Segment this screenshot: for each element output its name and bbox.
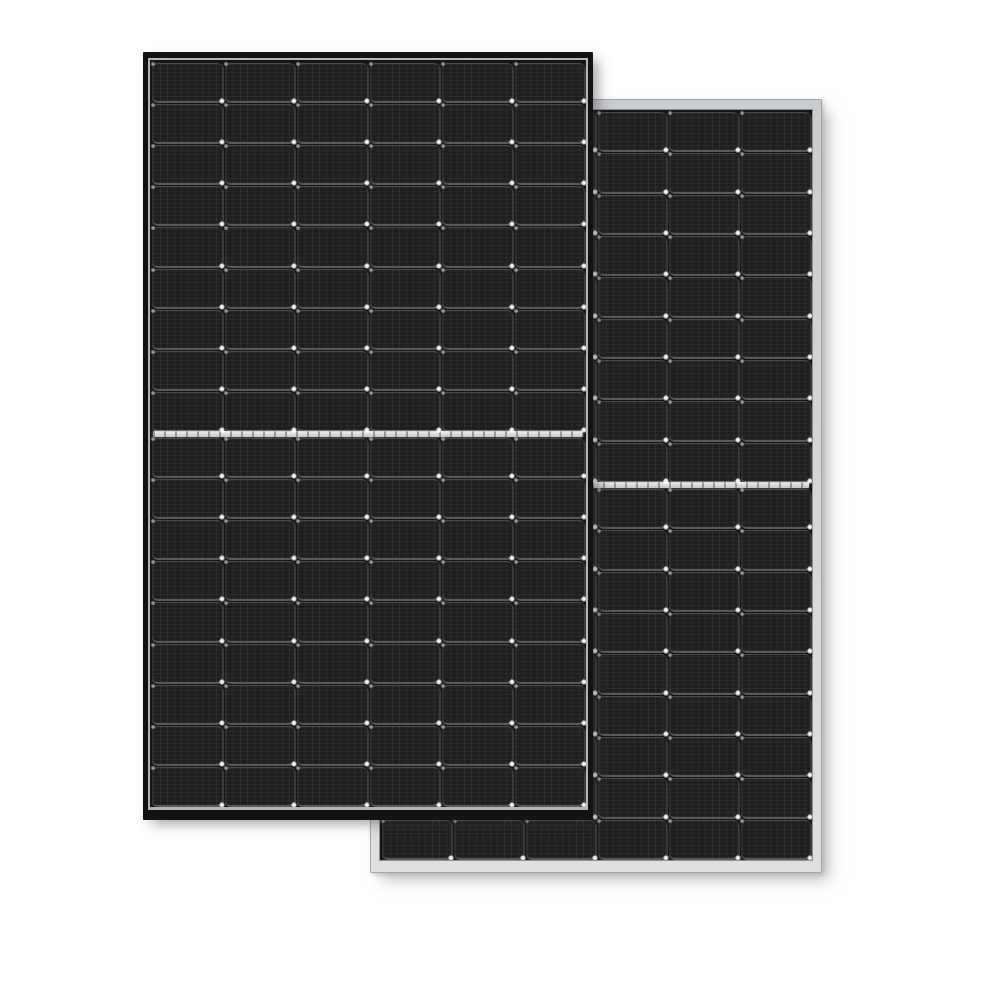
solar-half-cell <box>598 613 667 651</box>
solar-half-cell <box>669 737 738 775</box>
solar-half-cell <box>152 520 222 558</box>
solar-half-cell <box>515 351 585 389</box>
solar-half-cell <box>225 644 295 682</box>
solar-half-cell <box>741 613 810 651</box>
solar-half-cell <box>454 820 523 858</box>
solar-half-cell <box>370 644 440 682</box>
solar-half-cell <box>152 392 222 430</box>
solar-half-cell <box>370 602 440 640</box>
solar-half-cell <box>515 520 585 558</box>
solar-half-cell <box>598 489 667 527</box>
solar-half-cell <box>152 726 222 764</box>
solar-half-cell <box>442 145 512 183</box>
solar-half-cell <box>152 227 222 265</box>
solar-half-cell <box>741 443 810 481</box>
solar-half-cell <box>741 737 810 775</box>
solar-half-cell <box>669 572 738 610</box>
solar-half-cell <box>152 644 222 682</box>
solar-half-cell <box>598 236 667 274</box>
solar-half-cell <box>152 269 222 307</box>
solar-half-cell <box>297 726 367 764</box>
solar-half-cell <box>598 572 667 610</box>
solar-half-cell <box>370 104 440 142</box>
solar-half-cell <box>515 145 585 183</box>
solar-half-cell <box>515 767 585 805</box>
solar-half-cell <box>225 520 295 558</box>
solar-half-cell <box>225 227 295 265</box>
solar-half-cell <box>152 104 222 142</box>
solar-half-cell <box>669 277 738 315</box>
solar-half-cell <box>152 63 222 101</box>
scene <box>0 0 1000 1000</box>
solar-half-cell <box>741 572 810 610</box>
solar-half-cell <box>669 153 738 191</box>
solar-half-cell <box>515 104 585 142</box>
solar-half-cell <box>515 561 585 599</box>
solar-panel-front <box>143 52 593 820</box>
solar-half-cell <box>741 820 810 858</box>
solar-half-cell <box>515 602 585 640</box>
solar-half-cell <box>442 351 512 389</box>
solar-half-cell <box>382 820 451 858</box>
solar-half-cell <box>297 269 367 307</box>
solar-half-cell <box>152 310 222 348</box>
solar-half-cell <box>669 696 738 734</box>
solar-half-cell <box>370 561 440 599</box>
solar-half-cell <box>225 561 295 599</box>
solar-half-cell <box>598 654 667 692</box>
solar-half-cell <box>598 696 667 734</box>
solar-half-cell <box>526 820 595 858</box>
solar-half-cell <box>370 227 440 265</box>
solar-half-cell <box>225 186 295 224</box>
solar-half-cell <box>669 489 738 527</box>
solar-half-cell <box>741 530 810 568</box>
solar-half-cell <box>152 351 222 389</box>
solar-half-cell <box>297 186 367 224</box>
solar-half-cell <box>370 310 440 348</box>
solar-half-cell <box>225 104 295 142</box>
solar-half-cell <box>152 186 222 224</box>
solar-half-cell <box>741 195 810 233</box>
solar-half-cell <box>515 392 585 430</box>
solar-half-cell <box>370 726 440 764</box>
solar-half-cell <box>225 438 295 476</box>
solar-half-cell <box>515 685 585 723</box>
solar-half-cell <box>152 767 222 805</box>
solar-half-cell <box>669 195 738 233</box>
solar-half-cell <box>370 145 440 183</box>
solar-half-cell <box>442 685 512 723</box>
solar-half-cell <box>297 602 367 640</box>
solar-half-cell <box>741 236 810 274</box>
solar-half-cell <box>370 63 440 101</box>
solar-half-cell <box>297 63 367 101</box>
solar-half-cell <box>741 778 810 816</box>
solar-half-cell <box>741 489 810 527</box>
solar-half-cell <box>152 561 222 599</box>
solar-half-cell <box>370 767 440 805</box>
solar-half-cell <box>297 520 367 558</box>
solar-half-cell <box>297 227 367 265</box>
solar-half-cell <box>515 644 585 682</box>
solar-half-cell <box>598 443 667 481</box>
solar-half-cell <box>442 602 512 640</box>
solar-half-cell <box>442 479 512 517</box>
solar-half-cell <box>370 685 440 723</box>
solar-half-cell <box>225 392 295 430</box>
solar-half-cell <box>442 186 512 224</box>
solar-half-cell <box>225 767 295 805</box>
solar-half-cell <box>442 310 512 348</box>
solar-half-cell <box>442 392 512 430</box>
solar-half-cell <box>515 726 585 764</box>
solar-half-cell <box>442 227 512 265</box>
solar-half-cell <box>669 319 738 357</box>
solar-half-cell <box>741 112 810 150</box>
solar-half-cell <box>598 195 667 233</box>
solar-half-cell <box>297 685 367 723</box>
solar-half-cell <box>598 778 667 816</box>
solar-half-cell <box>370 520 440 558</box>
solar-half-cell <box>152 145 222 183</box>
solar-half-cell <box>225 602 295 640</box>
solar-half-cell <box>515 310 585 348</box>
solar-half-cell <box>598 820 667 858</box>
solar-half-cell <box>598 401 667 439</box>
front-cell-grid-top <box>152 63 584 430</box>
solar-half-cell <box>442 561 512 599</box>
solar-half-cell <box>442 520 512 558</box>
solar-half-cell <box>297 310 367 348</box>
solar-half-cell <box>515 269 585 307</box>
solar-half-cell <box>370 438 440 476</box>
solar-half-cell <box>370 479 440 517</box>
solar-half-cell <box>741 696 810 734</box>
solar-half-cell <box>225 63 295 101</box>
solar-half-cell <box>741 319 810 357</box>
solar-half-cell <box>515 227 585 265</box>
solar-half-cell <box>669 654 738 692</box>
solar-half-cell <box>297 351 367 389</box>
solar-half-cell <box>297 145 367 183</box>
solar-half-cell <box>442 767 512 805</box>
solar-half-cell <box>741 360 810 398</box>
solar-half-cell <box>515 479 585 517</box>
solar-half-cell <box>598 319 667 357</box>
solar-half-cell <box>370 351 440 389</box>
solar-half-cell <box>669 112 738 150</box>
solar-half-cell <box>297 767 367 805</box>
solar-half-cell <box>152 685 222 723</box>
solar-half-cell <box>741 654 810 692</box>
solar-half-cell <box>741 153 810 191</box>
solar-half-cell <box>669 360 738 398</box>
solar-half-cell <box>515 438 585 476</box>
solar-half-cell <box>598 277 667 315</box>
solar-half-cell <box>669 401 738 439</box>
solar-half-cell <box>225 351 295 389</box>
solar-half-cell <box>225 726 295 764</box>
solar-half-cell <box>598 737 667 775</box>
solar-half-cell <box>152 438 222 476</box>
solar-half-cell <box>297 479 367 517</box>
solar-half-cell <box>442 63 512 101</box>
solar-half-cell <box>225 269 295 307</box>
solar-half-cell <box>225 145 295 183</box>
solar-half-cell <box>669 778 738 816</box>
solar-half-cell <box>515 186 585 224</box>
solar-half-cell <box>598 360 667 398</box>
solar-half-cell <box>225 685 295 723</box>
solar-half-cell <box>297 104 367 142</box>
solar-half-cell <box>442 438 512 476</box>
solar-half-cell <box>152 479 222 517</box>
solar-half-cell <box>442 644 512 682</box>
solar-half-cell <box>741 277 810 315</box>
solar-half-cell <box>370 392 440 430</box>
solar-half-cell <box>442 726 512 764</box>
solar-half-cell <box>225 479 295 517</box>
solar-half-cell <box>370 269 440 307</box>
solar-half-cell <box>442 104 512 142</box>
solar-half-cell <box>669 530 738 568</box>
solar-half-cell <box>741 401 810 439</box>
solar-half-cell <box>669 443 738 481</box>
solar-half-cell <box>669 820 738 858</box>
solar-half-cell <box>370 186 440 224</box>
front-panel-glass <box>148 58 588 810</box>
solar-half-cell <box>297 392 367 430</box>
solar-half-cell <box>152 602 222 640</box>
solar-half-cell <box>442 269 512 307</box>
solar-half-cell <box>297 438 367 476</box>
solar-half-cell <box>598 153 667 191</box>
solar-half-cell <box>669 236 738 274</box>
solar-half-cell <box>225 310 295 348</box>
solar-half-cell <box>515 63 585 101</box>
solar-half-cell <box>297 644 367 682</box>
front-center-busbar-divider <box>153 431 583 437</box>
solar-half-cell <box>598 530 667 568</box>
solar-half-cell <box>598 112 667 150</box>
solar-half-cell <box>297 561 367 599</box>
solar-half-cell <box>669 613 738 651</box>
front-cell-grid-bottom <box>152 438 584 805</box>
